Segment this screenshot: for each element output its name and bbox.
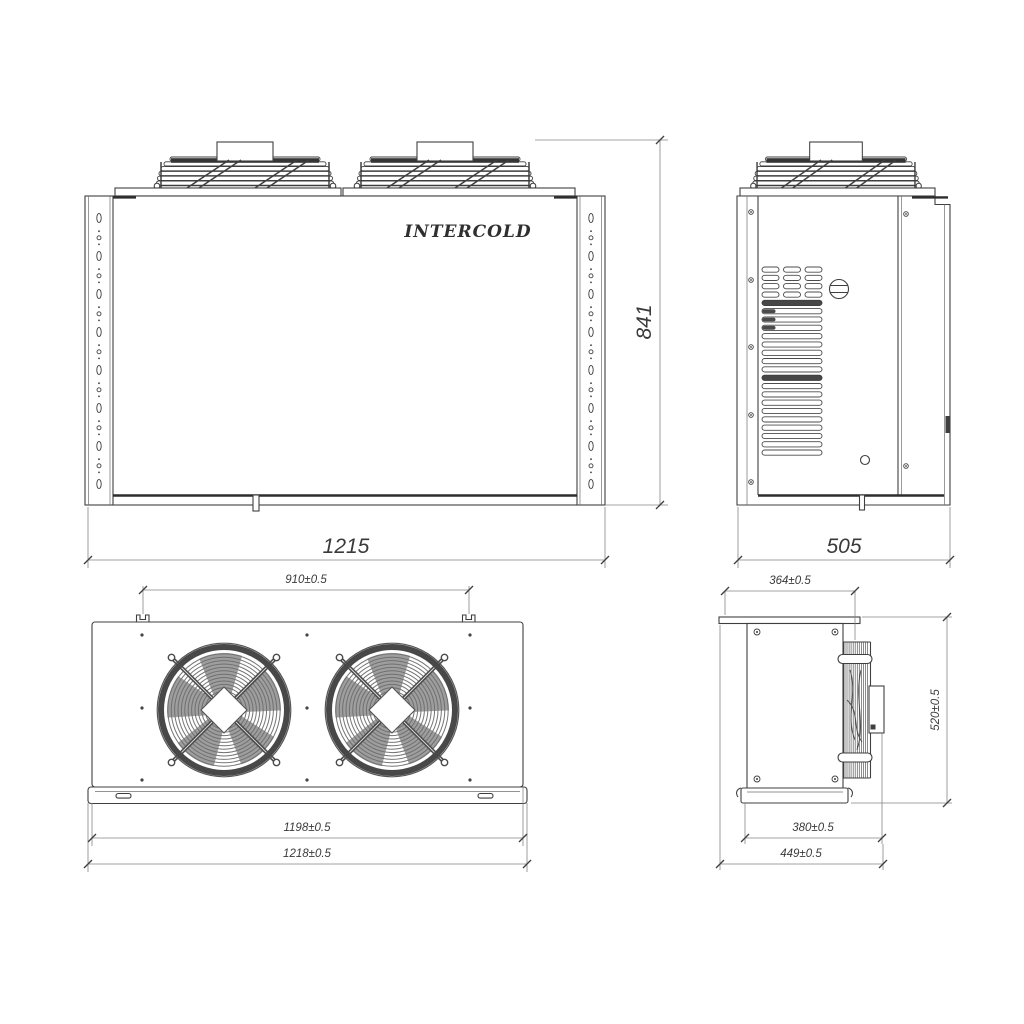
drain-tab bbox=[253, 495, 259, 511]
dimension-label-side-depth: 505 bbox=[826, 535, 861, 558]
coil-header-top bbox=[838, 655, 872, 664]
top-plate-right bbox=[343, 188, 575, 196]
side-plan-view bbox=[719, 617, 884, 803]
rivet-column-right bbox=[589, 213, 593, 488]
dimension-label-overall-width: 1218±0.5 bbox=[283, 848, 331, 860]
fan-side-profile-right-icon bbox=[354, 142, 536, 190]
drawing-page: INTERCOLD bbox=[0, 0, 1024, 1024]
plan-view bbox=[88, 615, 527, 804]
side-panel bbox=[747, 624, 843, 791]
base-hook bbox=[737, 788, 741, 797]
coil-header-bottom bbox=[838, 753, 872, 762]
drain-tab bbox=[860, 495, 865, 510]
fan-side-profile-icon bbox=[751, 142, 922, 190]
front-view: INTERCOLD bbox=[85, 142, 605, 511]
latch-tab bbox=[946, 416, 951, 433]
base-channel bbox=[741, 788, 848, 803]
rivet-column-left bbox=[97, 213, 101, 488]
top-plate-left bbox=[115, 188, 341, 196]
mount-bracket-right bbox=[463, 615, 476, 622]
bottom-channel bbox=[88, 787, 527, 804]
mount-bracket-left bbox=[137, 615, 150, 622]
valve-port bbox=[871, 725, 876, 730]
dimension-label-front-height: 841 bbox=[633, 304, 656, 339]
side-view bbox=[737, 142, 950, 510]
dimension-label-overall-depth: 449±0.5 bbox=[780, 848, 822, 860]
dimension-label-sp-height: 520±0.5 bbox=[930, 689, 942, 731]
base-hook bbox=[848, 788, 852, 797]
dimension-label-mount-depth: 364±0.5 bbox=[769, 575, 811, 587]
fan-side-profile-left-icon bbox=[154, 142, 336, 190]
front-body bbox=[85, 196, 605, 505]
dimension-label-front-width: 1215 bbox=[323, 535, 370, 558]
dimension-label-body-depth: 380±0.5 bbox=[792, 822, 834, 834]
side-top-plate bbox=[740, 188, 935, 196]
vent-louvers bbox=[762, 267, 822, 455]
dimension-label-body-width: 1198±0.5 bbox=[283, 822, 331, 834]
technical-drawing: INTERCOLD bbox=[0, 0, 1024, 1024]
dimension-label-mount-spacing: 910±0.5 bbox=[285, 574, 327, 586]
mount-flange bbox=[719, 617, 860, 624]
brand-logo: INTERCOLD bbox=[403, 222, 531, 242]
